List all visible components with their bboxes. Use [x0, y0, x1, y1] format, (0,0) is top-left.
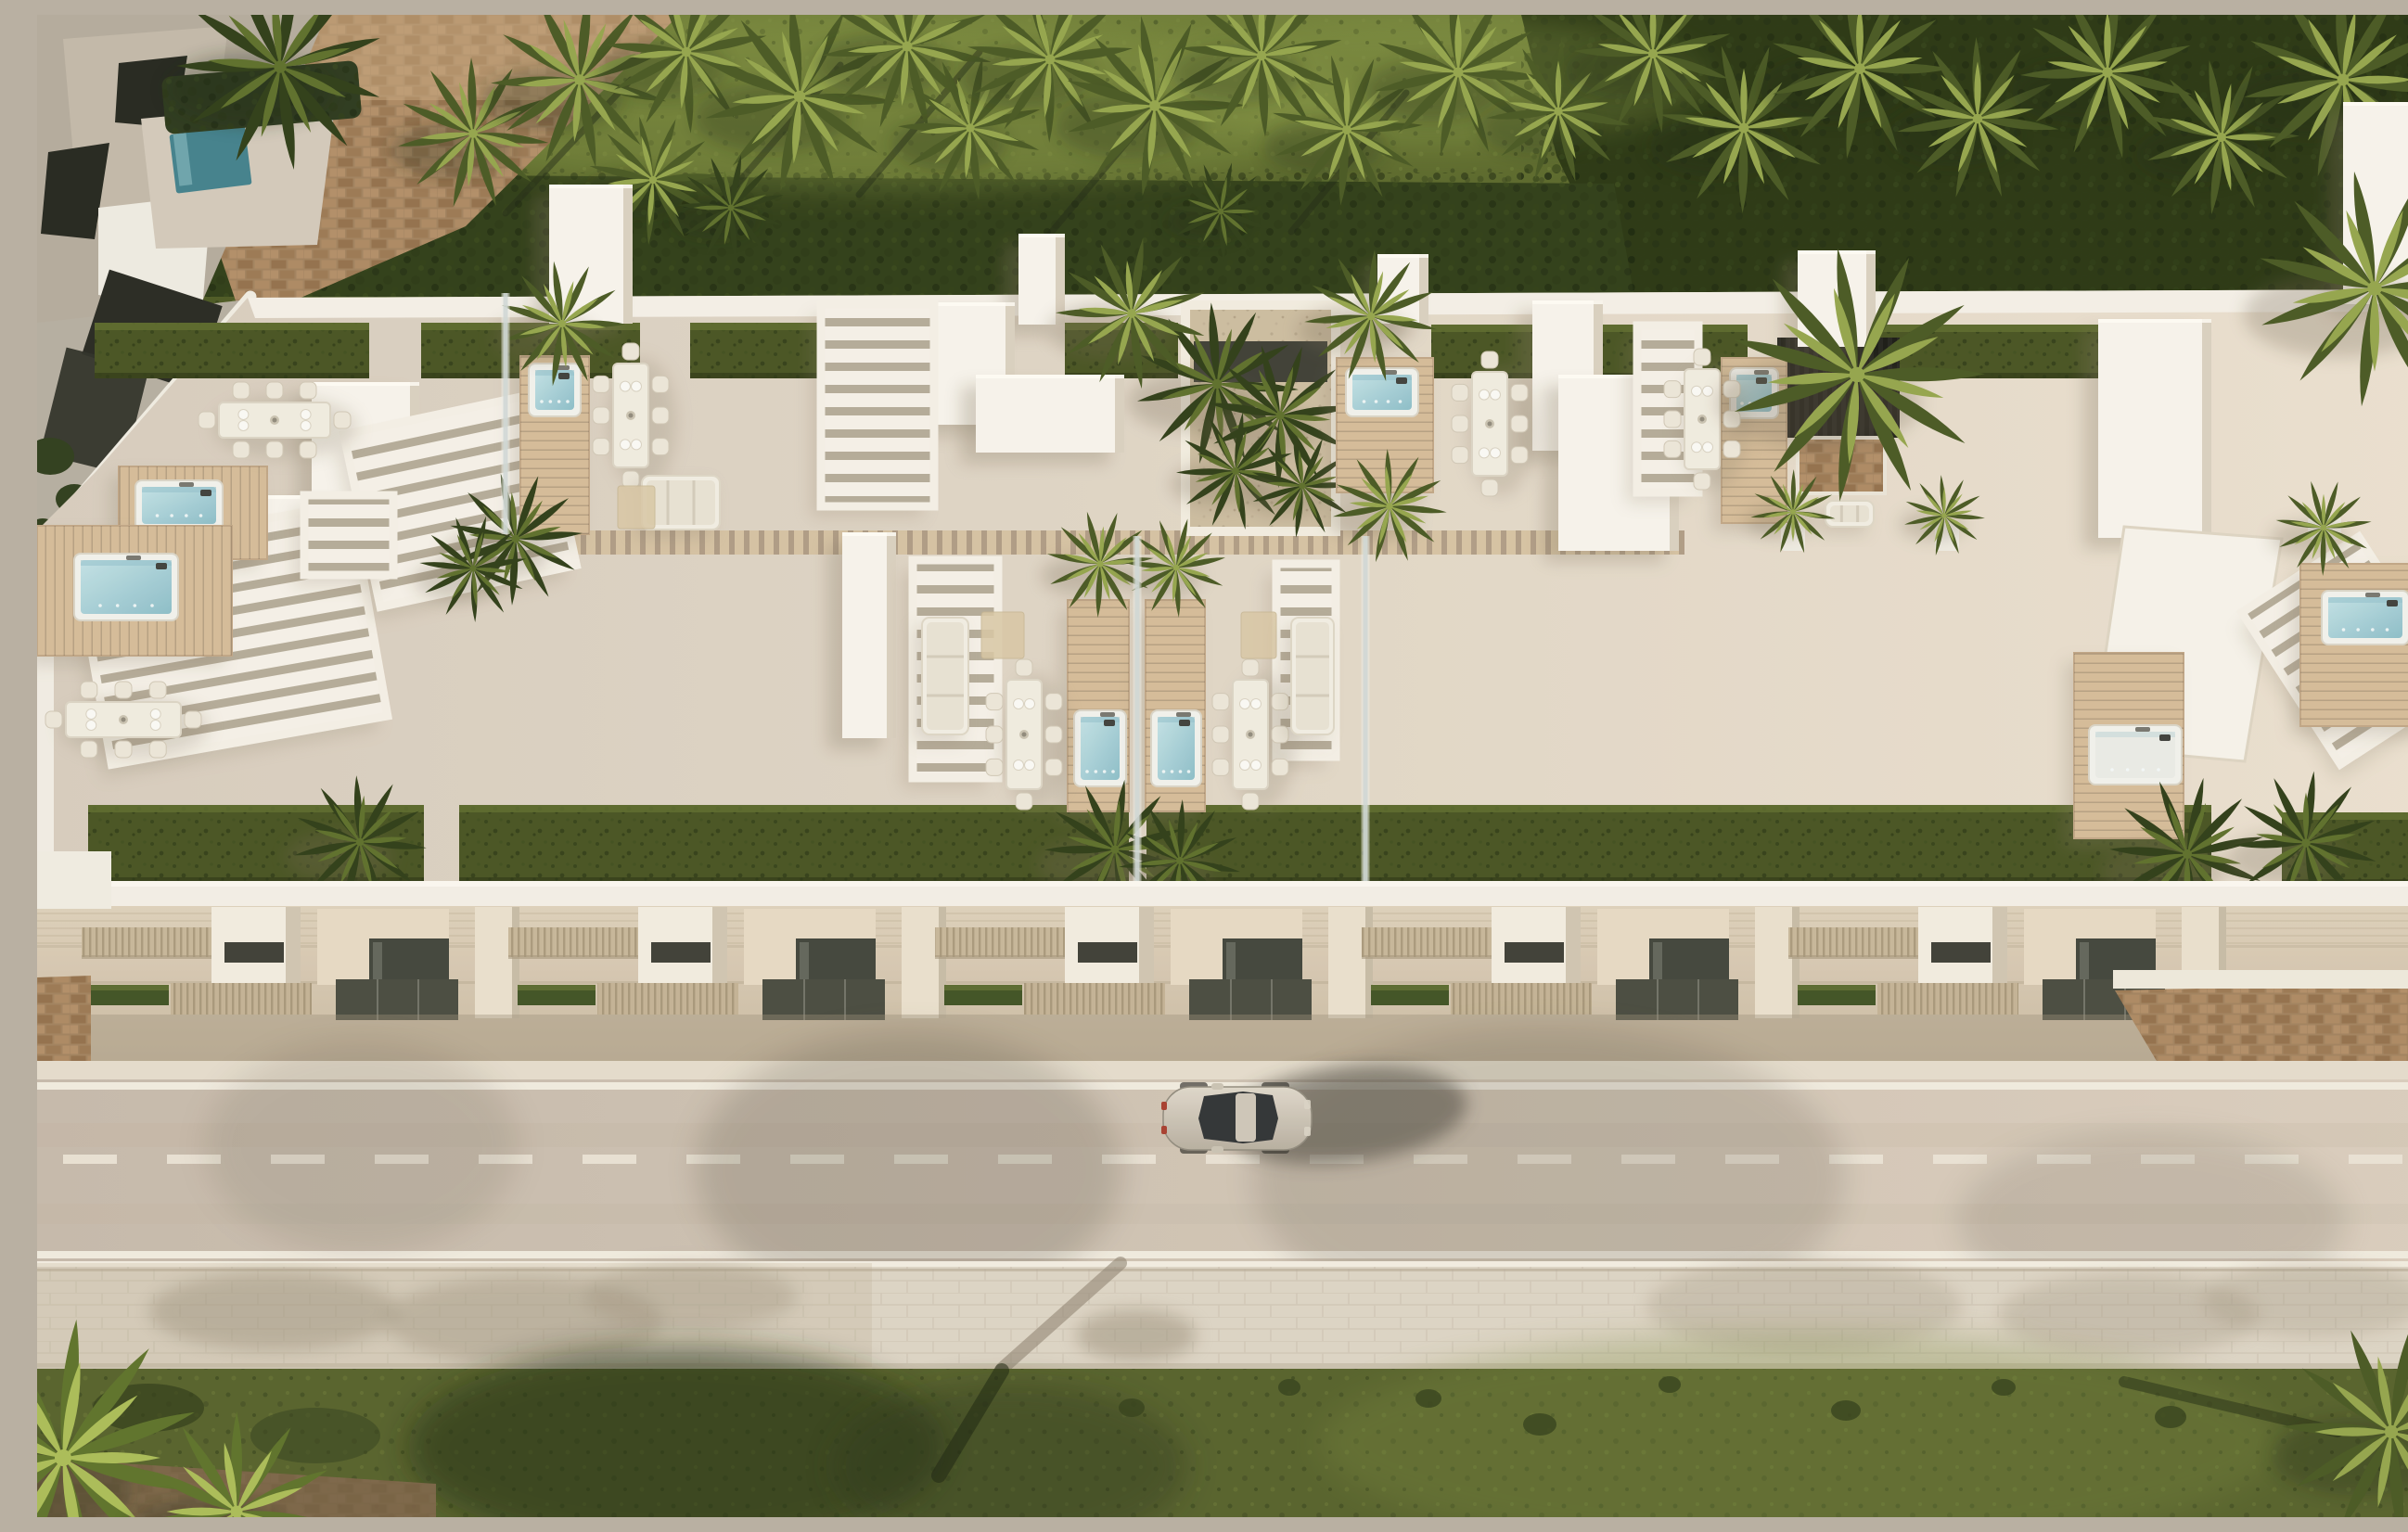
scene-root	[37, 15, 2408, 1517]
warm-haze-overlay	[37, 15, 2408, 1517]
render-canvas	[37, 15, 2408, 1517]
aerial-architectural-render: Aerial drone view 3D render of a long mo…	[37, 15, 2408, 1517]
